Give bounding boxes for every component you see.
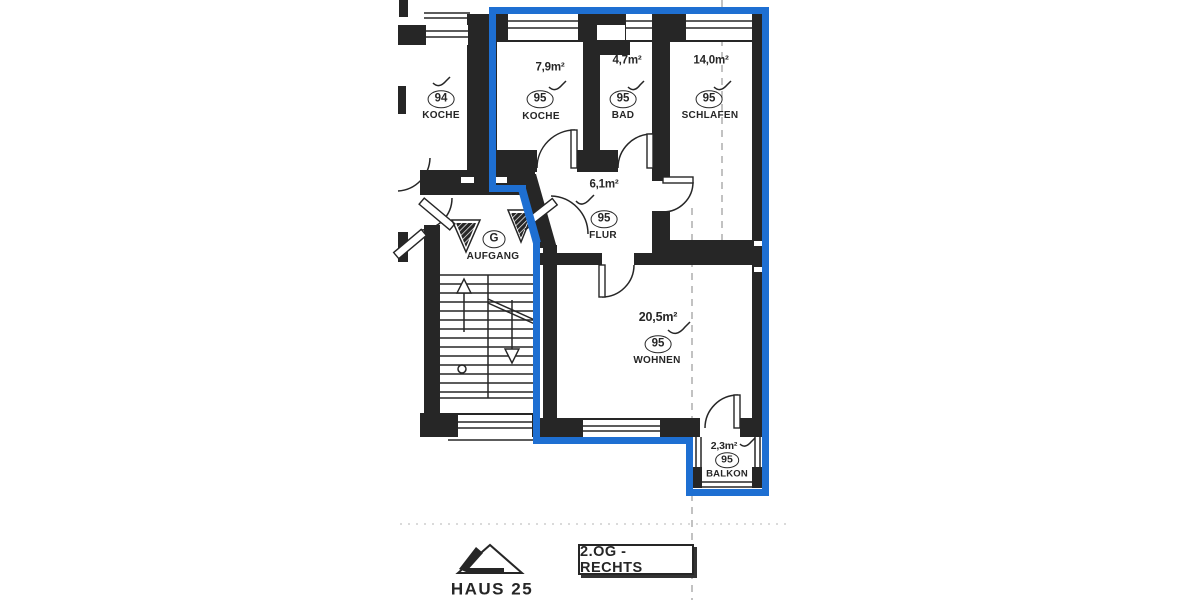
room-name-bad: BAD bbox=[612, 111, 635, 121]
unit-badge-bad: 95 bbox=[610, 90, 637, 108]
room-name-flur: FLUR bbox=[589, 231, 617, 241]
unit-badge-balkon: 95 bbox=[715, 452, 739, 468]
unit-badge-kueche: 95 bbox=[527, 90, 554, 108]
room-area-flur: 6,1m² bbox=[589, 179, 618, 191]
room-area-wohnen: 20,5m² bbox=[639, 311, 677, 324]
staircase bbox=[439, 275, 537, 398]
house-label: HAUS 25 bbox=[451, 581, 533, 598]
room-name-kueche: KOCHE bbox=[522, 112, 560, 122]
floor-plan-drawing bbox=[0, 0, 1200, 600]
stairwell-name: AUFGANG bbox=[467, 252, 520, 262]
room-name-wohnen: WOHNEN bbox=[633, 356, 680, 366]
room-area-balkon: 2,3m² bbox=[711, 441, 737, 452]
room-name-schlafen: SCHLAFEN bbox=[682, 111, 739, 121]
unit-badge-stairwell: G bbox=[483, 230, 506, 248]
room-name-neighbor: KOCHE bbox=[422, 111, 460, 121]
room-area-kueche: 7,9m² bbox=[535, 62, 564, 74]
room-name-balkon: BALKON bbox=[706, 469, 748, 479]
floor-label-box: 2.OG - RECHTS bbox=[578, 544, 694, 575]
floor-plan-page: 7,9m² 95 KOCHE 4,7m² 95 BAD 14,0m² 95 SC… bbox=[0, 0, 1200, 600]
unit-badge-wohnen: 95 bbox=[645, 335, 672, 353]
unit-badge-flur: 95 bbox=[591, 210, 618, 228]
room-area-bad: 4,7m² bbox=[612, 55, 641, 67]
room-area-schlafen: 14,0m² bbox=[693, 55, 728, 67]
floor-label: 2.OG - RECHTS bbox=[580, 544, 692, 576]
house-icon bbox=[458, 545, 522, 574]
walls bbox=[398, 0, 768, 488]
unit-badge-schlafen: 95 bbox=[696, 90, 723, 108]
unit-badge-neighbor: 94 bbox=[428, 90, 455, 108]
